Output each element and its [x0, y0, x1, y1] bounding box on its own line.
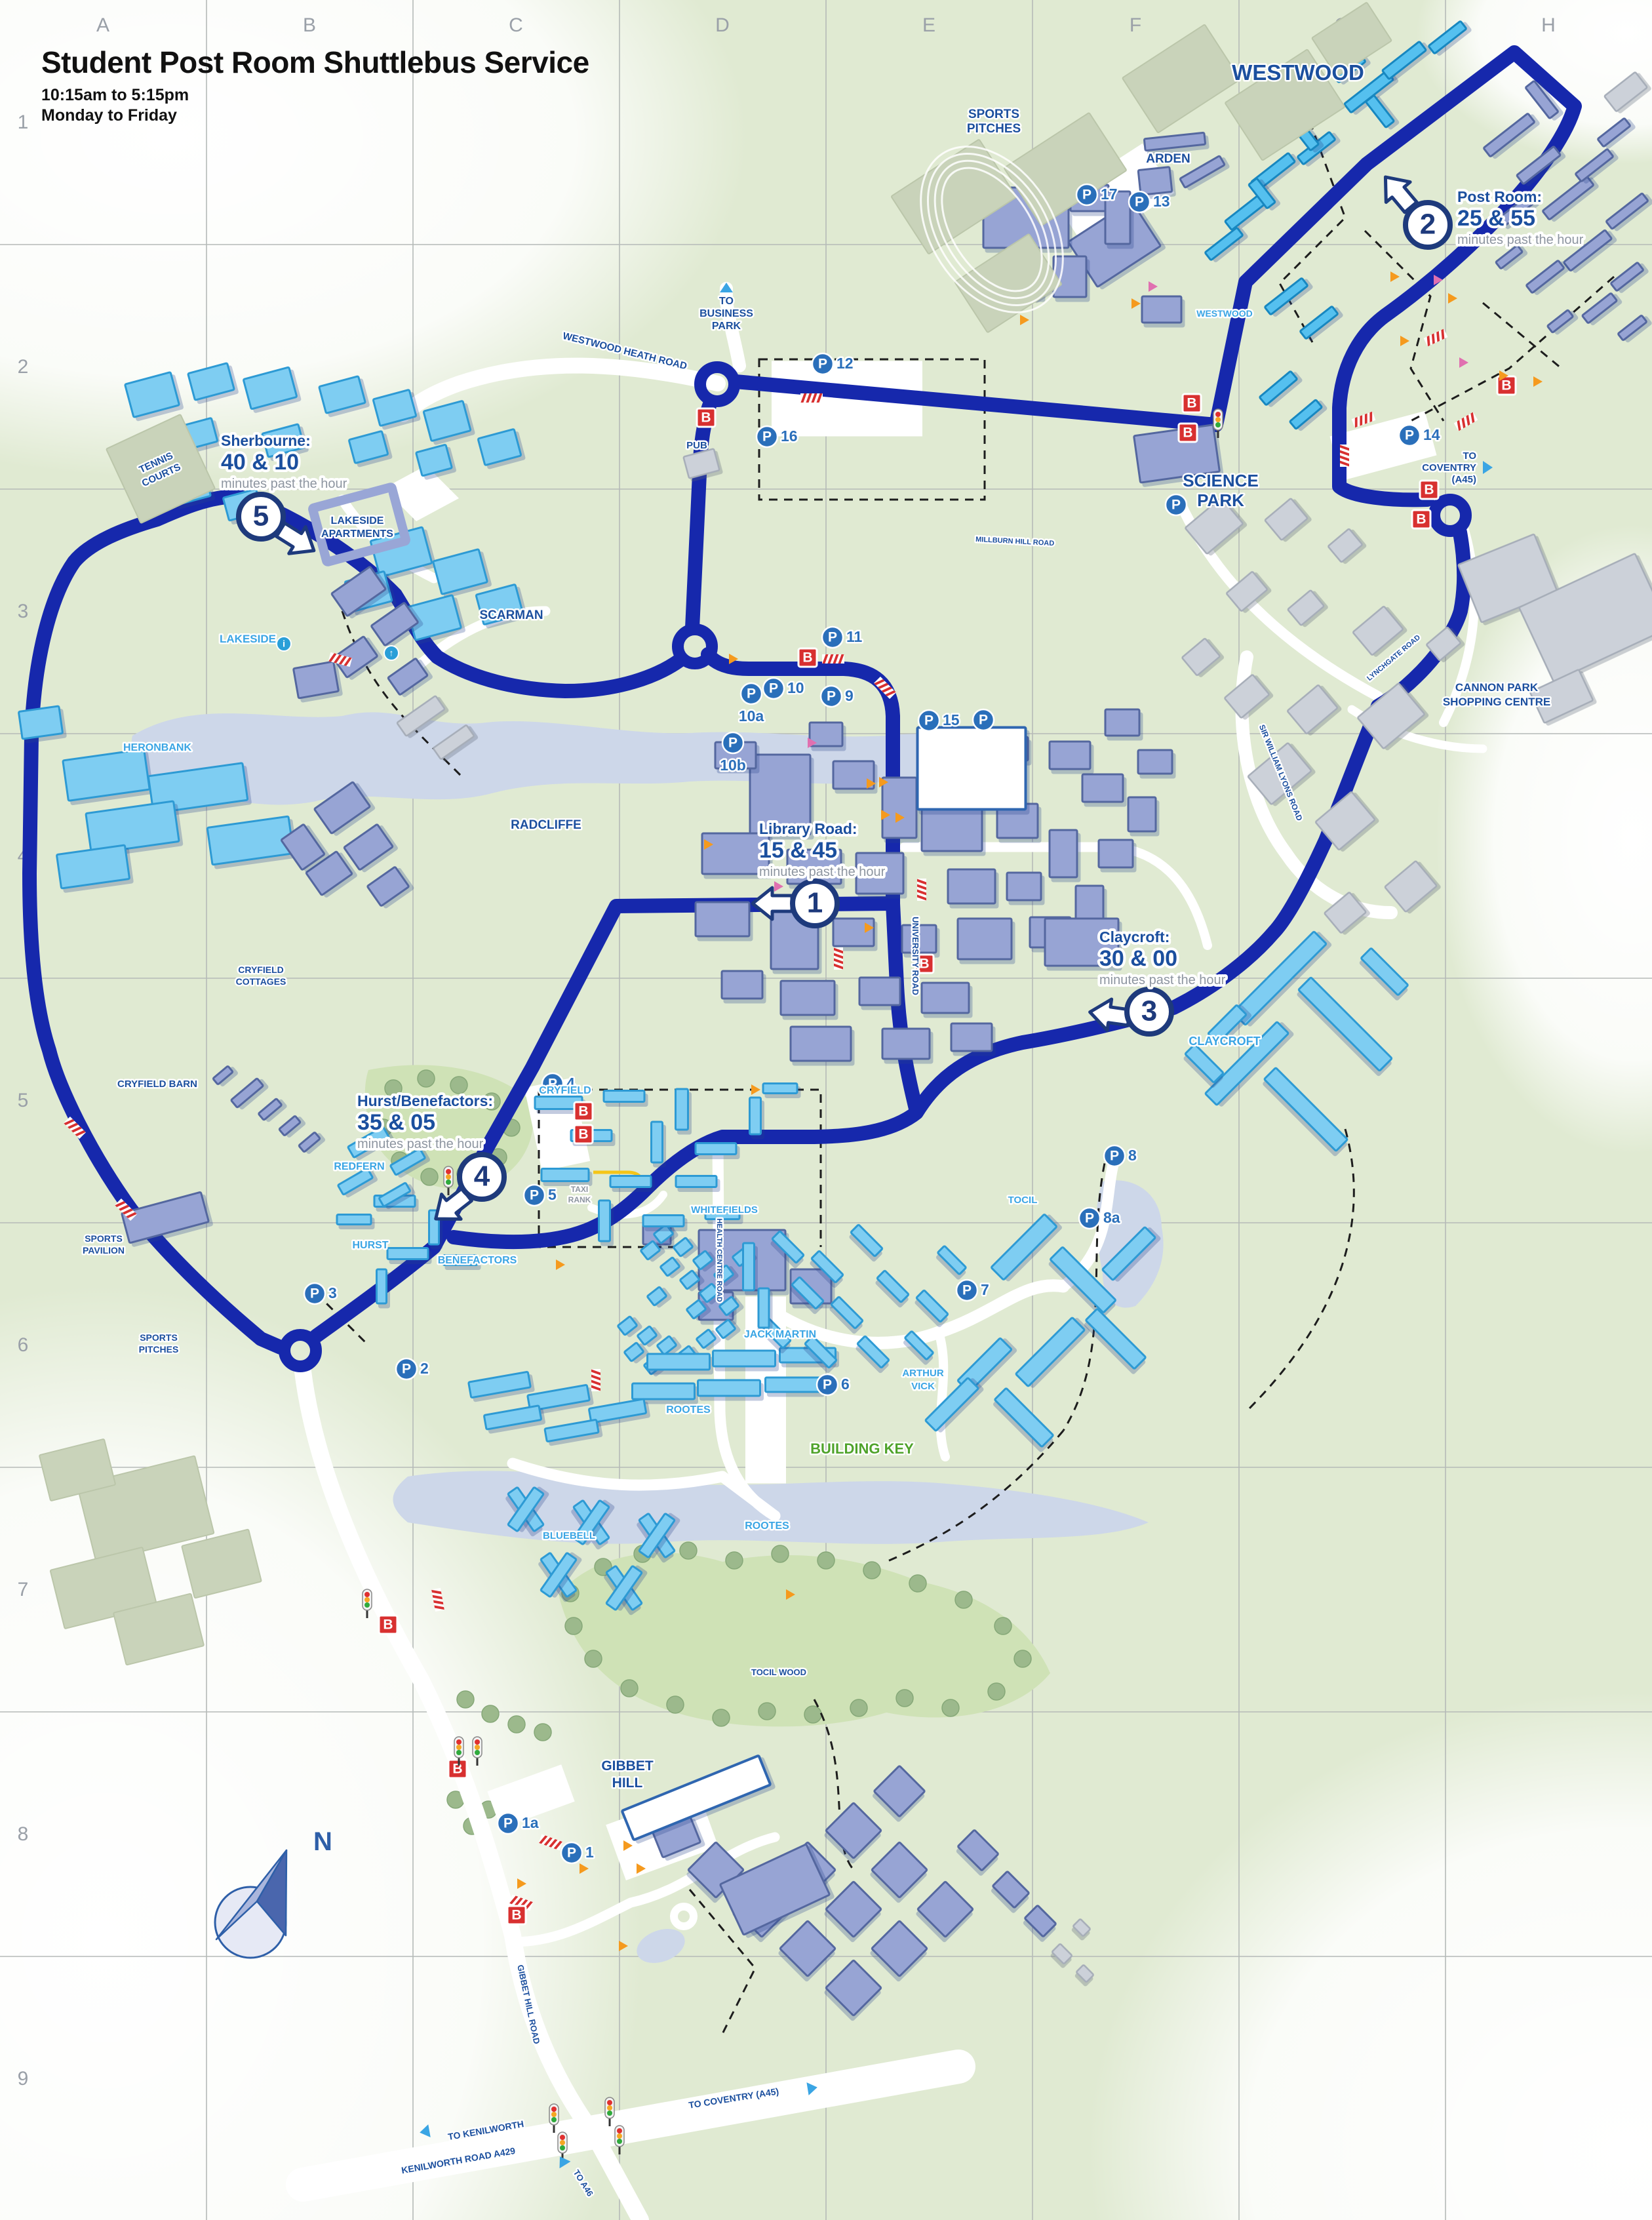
parking-marker-P5: P5 [524, 1185, 557, 1206]
svg-text:1a: 1a [522, 1814, 539, 1831]
svg-text:B: B [1501, 378, 1511, 393]
map-label-scarman: SCARMAN [479, 608, 543, 622]
stop-place-label: Hurst/Benefactors: [357, 1092, 493, 1109]
stop-place-label: Library Road: [759, 820, 857, 837]
crossing-marker [800, 393, 823, 403]
map-label-tocil: TOCIL [1008, 1195, 1038, 1206]
svg-text:2: 2 [420, 1360, 429, 1377]
map-label-tocil-wood: TOCIL WOOD [751, 1667, 806, 1677]
parking-marker-P: P [1166, 494, 1187, 515]
map-label-whitefields: WHITEFIELDS [691, 1204, 758, 1216]
crossing-marker [834, 947, 843, 970]
svg-text:P: P [924, 713, 934, 728]
crossing-marker [591, 1369, 600, 1391]
svg-text:B: B [802, 650, 812, 665]
building [758, 1288, 769, 1328]
bus-stop-marker: B [379, 1615, 397, 1634]
building [293, 662, 338, 698]
building [781, 981, 835, 1015]
svg-text:B: B [1183, 426, 1192, 441]
svg-text:B: B [511, 1908, 521, 1923]
parking-marker-P1: P1 [561, 1842, 594, 1863]
svg-text:P: P [827, 689, 836, 704]
building [652, 1122, 663, 1162]
building [958, 919, 1012, 959]
svg-text:↑: ↑ [389, 648, 394, 658]
building [696, 1143, 736, 1155]
stop-note-label: minutes past the hour [1457, 233, 1584, 247]
tree [772, 1545, 789, 1562]
building [696, 902, 749, 936]
info-marker: i [277, 637, 291, 651]
svg-text:i: i [283, 639, 285, 649]
tree [621, 1680, 638, 1697]
grid-column-label: H [1541, 14, 1556, 36]
building [918, 728, 1026, 810]
building [1138, 167, 1172, 195]
bus-stop-marker: B [507, 1906, 526, 1924]
map-label-heronbank: HERONBANK [123, 742, 191, 753]
map-label-rank: RANK [568, 1195, 591, 1204]
tree [909, 1575, 926, 1592]
building [1128, 797, 1156, 831]
svg-text:11: 11 [846, 628, 863, 645]
map-label-to: TO [1463, 450, 1476, 462]
building [387, 1248, 428, 1259]
campus-map-page: ABCDEFGH123456789 BBBBBBBBBBBBBi↑P1P1aP2… [0, 0, 1652, 2220]
map-label-park: PARK [712, 321, 741, 332]
map-label-cryfield-barn: CRYFIELD BARN [117, 1079, 197, 1090]
map-label-gibbet: GIBBET [601, 1758, 654, 1774]
svg-text:3: 3 [328, 1284, 337, 1301]
tree [450, 1077, 467, 1094]
map-label-lakeside: LAKESIDE [220, 633, 276, 645]
svg-text:12: 12 [836, 355, 854, 372]
map-label-pitches: PITCHES [967, 122, 1021, 136]
tree [482, 1705, 499, 1722]
building [676, 1089, 688, 1130]
campus-map: ABCDEFGH123456789 BBBBBBBBBBBBBi↑P1P1aP2… [0, 0, 1652, 2220]
building [1007, 873, 1041, 900]
building [676, 1176, 717, 1187]
grid-row-label: 7 [18, 1579, 29, 1600]
building [599, 1200, 610, 1241]
grid-row-label: 5 [18, 1090, 29, 1111]
building [1142, 296, 1181, 323]
svg-text:10b: 10b [720, 757, 746, 774]
grid-row-label: 9 [18, 2068, 29, 2090]
building [948, 869, 995, 903]
tree [418, 1070, 435, 1087]
building [743, 1243, 755, 1290]
svg-text:10a: 10a [739, 707, 764, 724]
tree [667, 1696, 684, 1713]
grid-row-label: 1 [18, 111, 29, 133]
building [791, 1027, 851, 1061]
svg-text:B: B [701, 410, 711, 426]
building [1099, 840, 1133, 867]
map-label-pub: PUB [686, 440, 707, 451]
bus-stop-marker: B [1183, 394, 1201, 412]
parking-marker-P2: P2 [396, 1358, 429, 1379]
svg-text:B: B [1187, 396, 1196, 411]
map-label-rootes: ROOTES [745, 1520, 789, 1532]
svg-text:P: P [1135, 195, 1144, 210]
svg-text:P: P [728, 736, 737, 751]
parking-marker-P3: P3 [304, 1283, 337, 1304]
svg-text:16: 16 [781, 427, 798, 445]
building [722, 971, 762, 999]
tree [421, 1168, 438, 1185]
svg-text:P: P [1405, 428, 1414, 443]
building [859, 978, 900, 1005]
svg-text:B: B [452, 1762, 462, 1777]
building [1053, 256, 1086, 297]
svg-text:P: P [1085, 1211, 1094, 1226]
stop-note-label: minutes past the hour [221, 477, 347, 491]
grid-row-label: 6 [18, 1334, 29, 1356]
svg-text:P: P [402, 1362, 411, 1377]
map-label-business: BUSINESS [699, 308, 753, 319]
tree [534, 1724, 551, 1741]
bus-stop-marker: B [448, 1760, 467, 1778]
service-hours: 10:15am to 5:15pm [41, 85, 589, 106]
svg-text:6: 6 [841, 1376, 850, 1393]
map-label-westwood: WESTWOOD [1232, 60, 1364, 85]
svg-text:P: P [823, 1378, 832, 1393]
svg-text:B: B [578, 1104, 588, 1119]
map-label-coventry: COVENTRY [1422, 462, 1476, 473]
bus-stop-marker: B [1179, 424, 1197, 442]
map-label-vick: VICK [911, 1381, 935, 1392]
map-label-building-key: BUILDING KEY [810, 1440, 914, 1457]
map-label--a45-: (A45) [1451, 474, 1476, 485]
tree [565, 1617, 582, 1635]
tree [457, 1691, 474, 1708]
road [939, 1332, 945, 1457]
building [698, 1380, 760, 1396]
svg-text:17: 17 [1101, 186, 1118, 203]
map-label-university-road: UNIVERSITY ROAD [911, 917, 920, 995]
tree [850, 1699, 867, 1716]
stop-times-label: 40 & 10 [221, 450, 299, 475]
tree [680, 1542, 697, 1559]
tree [994, 1617, 1012, 1635]
building [18, 706, 62, 739]
grid-column-label: D [715, 14, 730, 36]
svg-text:P: P [962, 1283, 972, 1298]
tree [585, 1650, 602, 1667]
svg-text:P: P [818, 357, 827, 372]
stop-times-label: 30 & 00 [1099, 946, 1177, 971]
tree [955, 1591, 972, 1608]
stop-note-label: minutes past the hour [1099, 973, 1226, 987]
stop-place-label: Sherbourne: [221, 432, 311, 449]
building [763, 1084, 797, 1094]
bus-stop-marker: B [798, 648, 817, 667]
building [766, 1378, 821, 1392]
map-label-arden: ARDEN [1146, 152, 1190, 166]
stop-place-label: Post Room: [1457, 188, 1542, 205]
map-label-jack-martin: JACK MARTIN [744, 1329, 816, 1340]
stop-times-label: 35 & 05 [357, 1110, 435, 1135]
map-label-hurst: HURST [352, 1240, 388, 1251]
parking-marker-P: P [973, 709, 994, 730]
stop-number: 1 [807, 887, 823, 919]
info-marker: ↑ [384, 646, 399, 660]
crossing-marker [1340, 445, 1349, 467]
grid-row-label: 8 [18, 1823, 29, 1845]
map-label-to: TO [719, 296, 734, 307]
compass-north-label: N [313, 1827, 332, 1856]
building [1138, 750, 1172, 774]
svg-text:7: 7 [981, 1281, 989, 1298]
grid-column-label: A [96, 14, 109, 36]
service-days: Monday to Friday [41, 106, 589, 126]
parking-marker-P6: P6 [817, 1374, 850, 1395]
page-title: Student Post Room Shuttlebus Service [41, 45, 589, 80]
tree [1014, 1650, 1031, 1667]
building [1105, 709, 1139, 736]
map-label-lakeside: LAKESIDE [331, 515, 384, 526]
building [1082, 774, 1123, 802]
building [610, 1176, 651, 1187]
building [604, 1091, 644, 1102]
stop-place-label: Claycroft: [1099, 928, 1170, 945]
svg-text:P: P [1110, 1149, 1119, 1164]
stop-number: 3 [1141, 995, 1157, 1027]
stop-number: 5 [253, 500, 269, 532]
map-label-shopping-centre: SHOPPING CENTRE [1443, 696, 1550, 708]
svg-text:P: P [1171, 498, 1181, 513]
building [1050, 742, 1090, 769]
map-title-block: Student Post Room Shuttlebus Service 10:… [41, 45, 589, 126]
svg-text:B: B [1416, 512, 1426, 527]
building [882, 778, 916, 838]
svg-text:14: 14 [1423, 426, 1440, 443]
bus-stop-marker: B [697, 408, 715, 427]
svg-text:P: P [503, 1816, 513, 1831]
svg-text:B: B [383, 1617, 393, 1633]
grid-column-label: C [509, 14, 523, 36]
stop-times-label: 25 & 55 [1457, 206, 1535, 231]
map-label-taxi: TAXI [571, 1185, 588, 1194]
building [713, 1351, 776, 1366]
svg-text:P: P [530, 1188, 539, 1203]
building [882, 1029, 930, 1059]
svg-text:P: P [979, 713, 988, 728]
map-label-radcliffe: RADCLIFFE [511, 818, 581, 832]
map-label-rootes: ROOTES [666, 1404, 711, 1416]
map-label-science: SCIENCE [1183, 471, 1259, 490]
tree [863, 1562, 880, 1579]
parking-marker-P8: P8 [1104, 1145, 1137, 1166]
map-label-health-centre-road: HEALTH CENTRE ROAD [715, 1218, 723, 1302]
grid-row-label: 3 [18, 601, 29, 622]
svg-text:8: 8 [1128, 1147, 1137, 1164]
building [541, 1169, 589, 1181]
svg-text:B: B [578, 1127, 588, 1142]
tree [758, 1703, 776, 1720]
tree [508, 1716, 525, 1733]
map-label-apartments: APARTMENTS [321, 528, 393, 540]
crossing-marker [822, 654, 844, 664]
building [648, 1354, 710, 1370]
svg-text:P: P [1082, 188, 1091, 203]
svg-text:P: P [310, 1286, 319, 1301]
svg-text:B: B [1424, 483, 1434, 498]
building [951, 1023, 992, 1051]
building [922, 804, 982, 851]
map-label-redfern: REDFERN [334, 1161, 384, 1172]
grid-row-label: 2 [18, 356, 29, 378]
map-label-benefactors: BENEFACTORS [438, 1255, 517, 1266]
tree [713, 1709, 730, 1726]
building [922, 983, 969, 1013]
svg-text:10: 10 [787, 679, 804, 696]
map-label-sports: SPORTS [140, 1332, 178, 1343]
map-label-hill: HILL [612, 1775, 643, 1791]
parking-marker-P7: P7 [956, 1280, 989, 1301]
map-label-cryfield: CRYFIELD [238, 964, 283, 975]
building [377, 1269, 387, 1303]
tree [988, 1683, 1005, 1700]
svg-text:P: P [769, 681, 778, 696]
map-label-pavilion: PAVILION [83, 1245, 125, 1256]
svg-text:13: 13 [1153, 193, 1170, 210]
map-label-westwood: WESTWOOD [1196, 308, 1253, 319]
tree [804, 1706, 821, 1723]
building [833, 919, 874, 946]
bus-stop-marker: B [1420, 481, 1438, 499]
tree [942, 1699, 959, 1716]
parking-marker-P9: P9 [821, 686, 854, 707]
map-label-sports: SPORTS [85, 1233, 123, 1244]
stop-number: 2 [1420, 208, 1436, 241]
building [643, 1216, 684, 1227]
svg-text:P: P [747, 686, 756, 702]
svg-text:1: 1 [585, 1844, 594, 1861]
map-label-claycroft: CLAYCROFT [1189, 1035, 1260, 1048]
svg-text:8a: 8a [1103, 1209, 1120, 1226]
svg-text:P: P [567, 1846, 576, 1861]
stop-note-label: minutes past the hour [759, 865, 886, 879]
building [633, 1383, 695, 1399]
bus-stop-marker: B [574, 1102, 593, 1120]
svg-text:9: 9 [845, 687, 854, 704]
bus-stop-marker: B [574, 1125, 593, 1143]
building [750, 1098, 761, 1134]
map-label-arthur: ARTHUR [902, 1368, 943, 1379]
stop-number: 4 [474, 1160, 490, 1193]
map-label-park: PARK [1197, 490, 1244, 510]
svg-text:5: 5 [548, 1186, 557, 1203]
stop-times-label: 15 & 45 [759, 838, 837, 863]
building [337, 1215, 371, 1225]
tree [817, 1552, 835, 1569]
map-label-cryfield: CRYFIELD [539, 1085, 591, 1096]
grid-column-label: E [922, 14, 935, 36]
map-label-sports: SPORTS [968, 108, 1019, 121]
grid-column-label: F [1130, 14, 1141, 36]
tree [896, 1690, 913, 1707]
tree [726, 1552, 743, 1569]
map-label-cannon-park: CANNON PARK [1455, 681, 1539, 694]
map-label-cottages: COTTAGES [236, 976, 286, 987]
bus-stop-marker: B [1412, 510, 1430, 528]
map-label-bluebell: BLUEBELL [543, 1530, 595, 1541]
grid-column-label: B [303, 14, 316, 36]
building [1050, 830, 1077, 877]
svg-text:15: 15 [943, 711, 960, 728]
crossing-marker [917, 879, 926, 901]
map-label-pitches: PITCHES [139, 1344, 179, 1355]
stop-note-label: minutes past the hour [357, 1137, 484, 1151]
svg-text:P: P [828, 630, 837, 645]
svg-text:P: P [762, 429, 772, 445]
